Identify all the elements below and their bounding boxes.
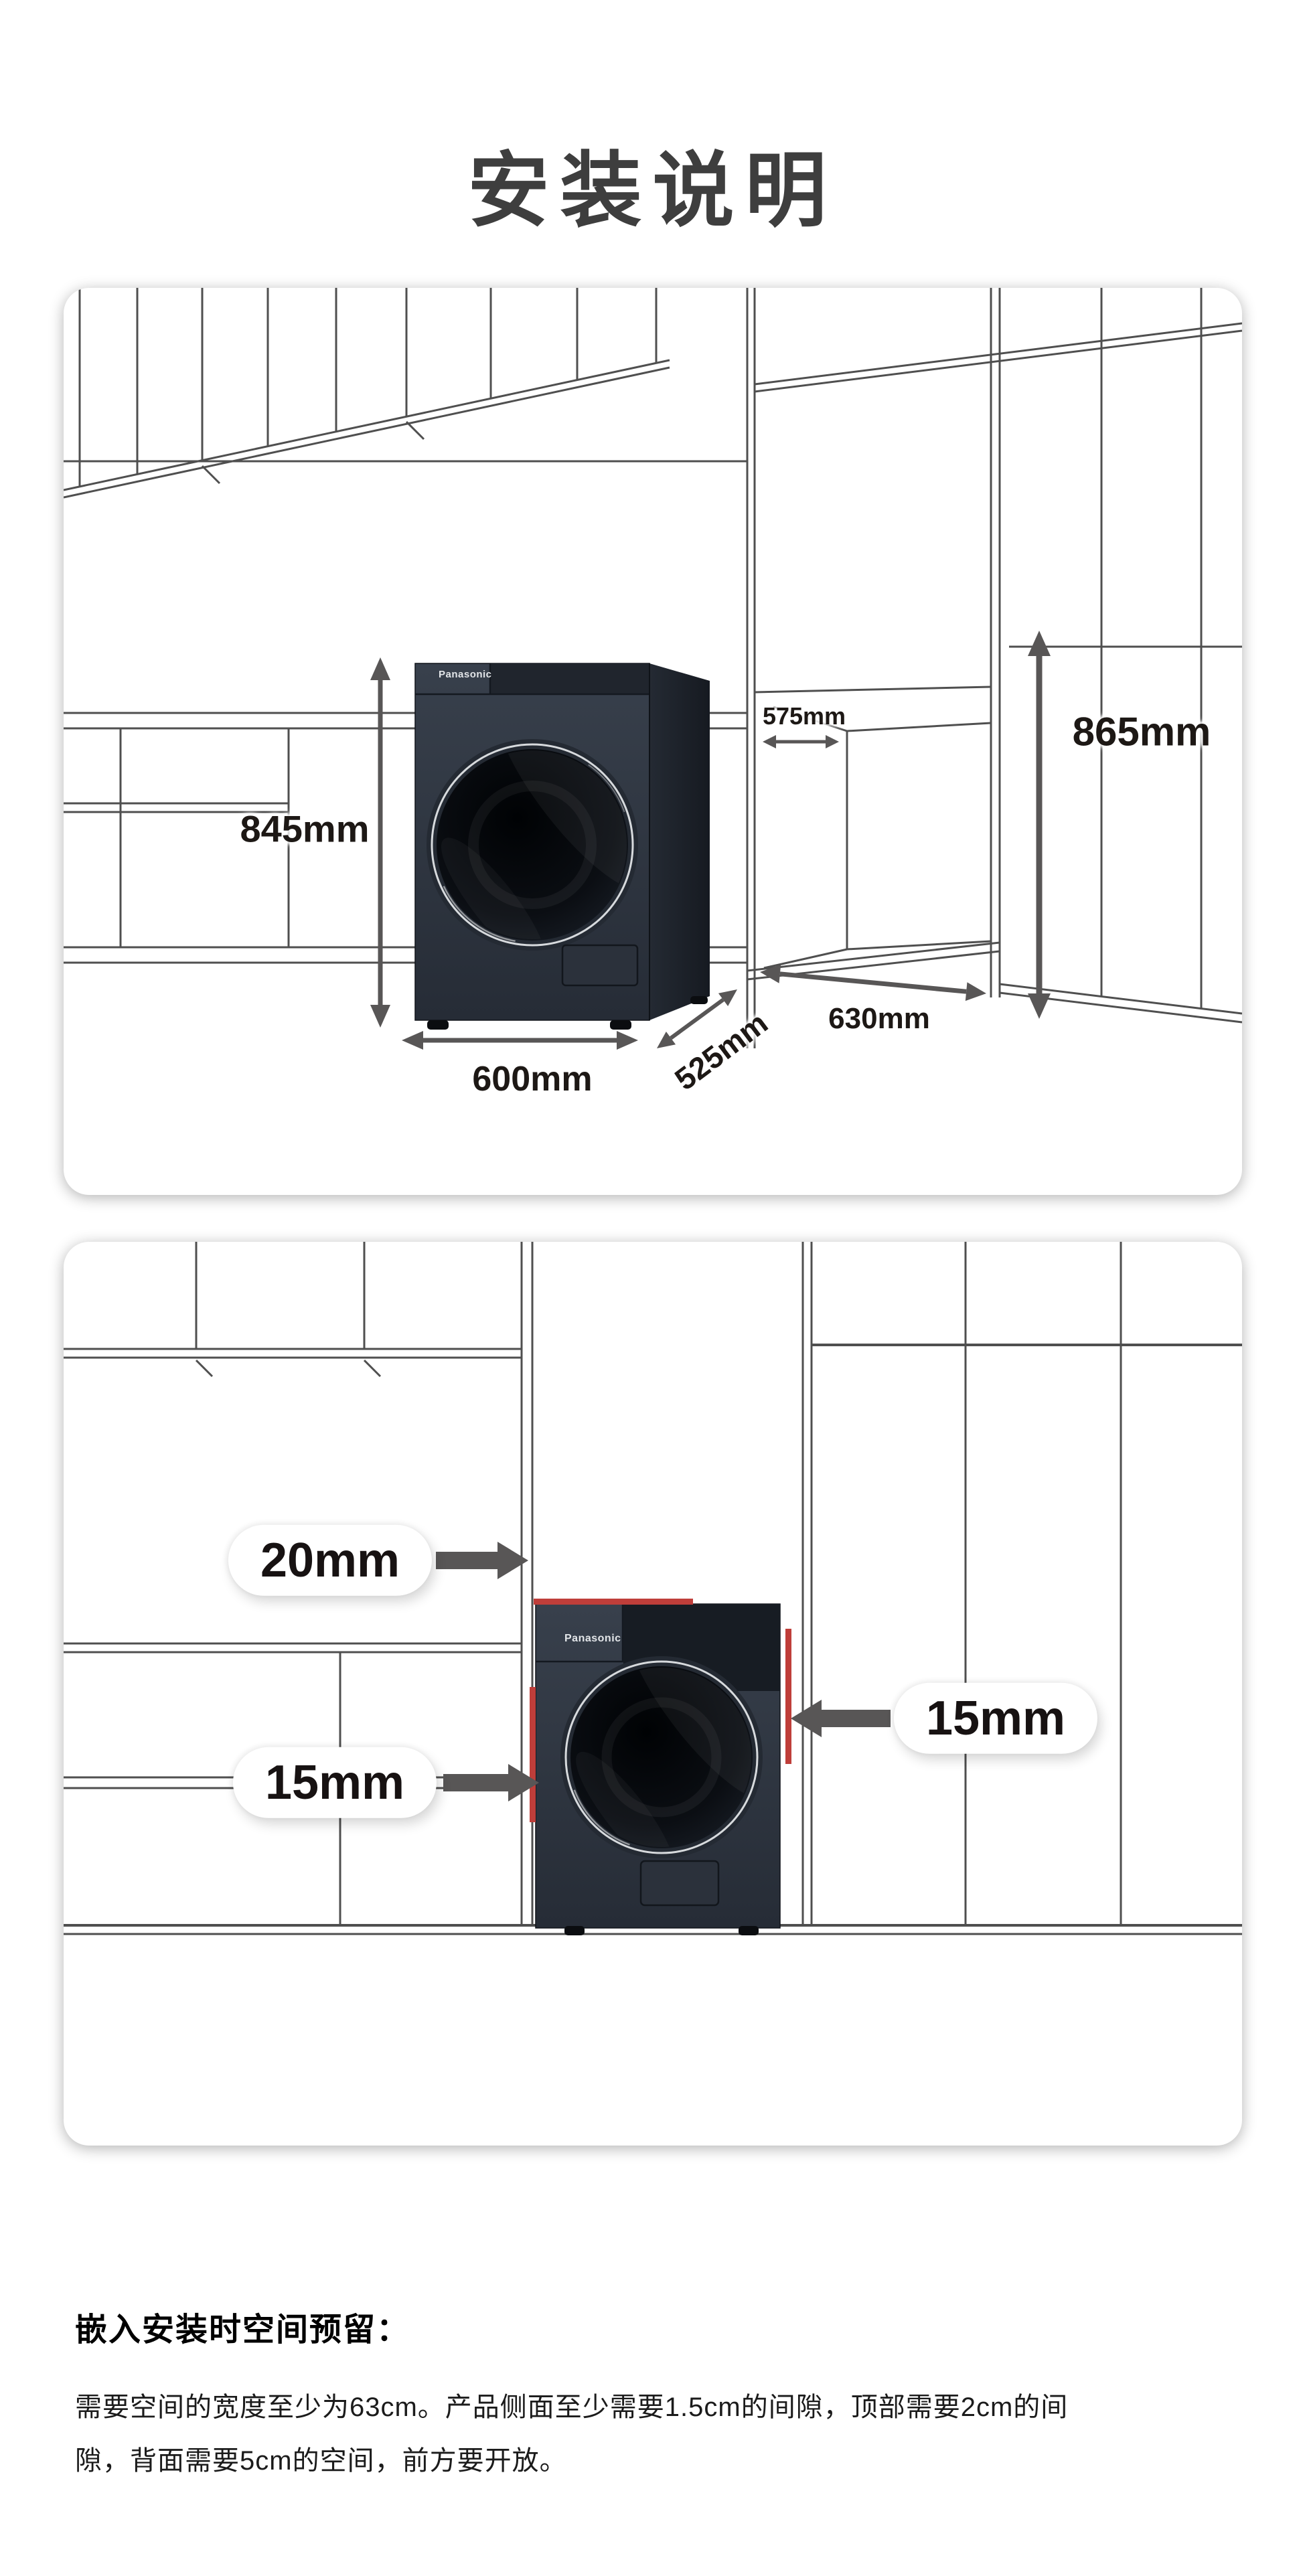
clearance-right-label: 15mm: [926, 1692, 1065, 1745]
dim-width-label: 600mm: [472, 1059, 592, 1099]
clearance-left-label: 15mm: [265, 1756, 404, 1809]
clearance-strip-left: [530, 1687, 536, 1822]
clearance-left-badge: 15mm: [233, 1747, 437, 1818]
clearance-strip-top: [534, 1599, 693, 1605]
washer-front-view: [530, 1599, 793, 1935]
panasonic-logo: Panasonic: [564, 1633, 621, 1645]
dim-niche-width-label: 575mm: [763, 702, 846, 730]
washer-drawer: [641, 1861, 718, 1905]
overview-diagram: [64, 288, 1242, 1195]
washer-glossy-top-panel: [491, 663, 649, 694]
installation-instructions-page: 安装说明: [0, 0, 1305, 2576]
dim-height-label: 845mm: [240, 807, 369, 851]
washer-side-face: [649, 663, 710, 1020]
footer-body: 需要空间的宽度至少为63cm。产品侧面至少需要1.5cm的间隙，顶部需要2cm的…: [75, 2381, 1099, 2488]
clearance-strip-right: [785, 1629, 791, 1764]
clearance-right-badge: 15mm: [894, 1683, 1097, 1754]
page-title: 安装说明: [0, 125, 1305, 243]
clearance-top-badge: 20mm: [228, 1525, 432, 1596]
washer-3d-view: [396, 663, 710, 1030]
dim-niche-height-label: 865mm: [1073, 709, 1211, 755]
panel-dimensions-overview: Panasonic 845mm 600mm 525mm 575mm 865mm …: [64, 288, 1242, 1195]
panel-embedded-installation: Panasonic 20mm 15mm 15mm: [64, 1242, 1242, 2146]
panasonic-logo: Panasonic: [439, 669, 492, 680]
clearance-top-label: 20mm: [260, 1534, 400, 1587]
footer-heading: 嵌入安装时空间预留：: [75, 2303, 410, 2350]
washer-drawer: [562, 945, 637, 985]
dim-niche-depth-label: 630mm: [828, 1002, 930, 1036]
